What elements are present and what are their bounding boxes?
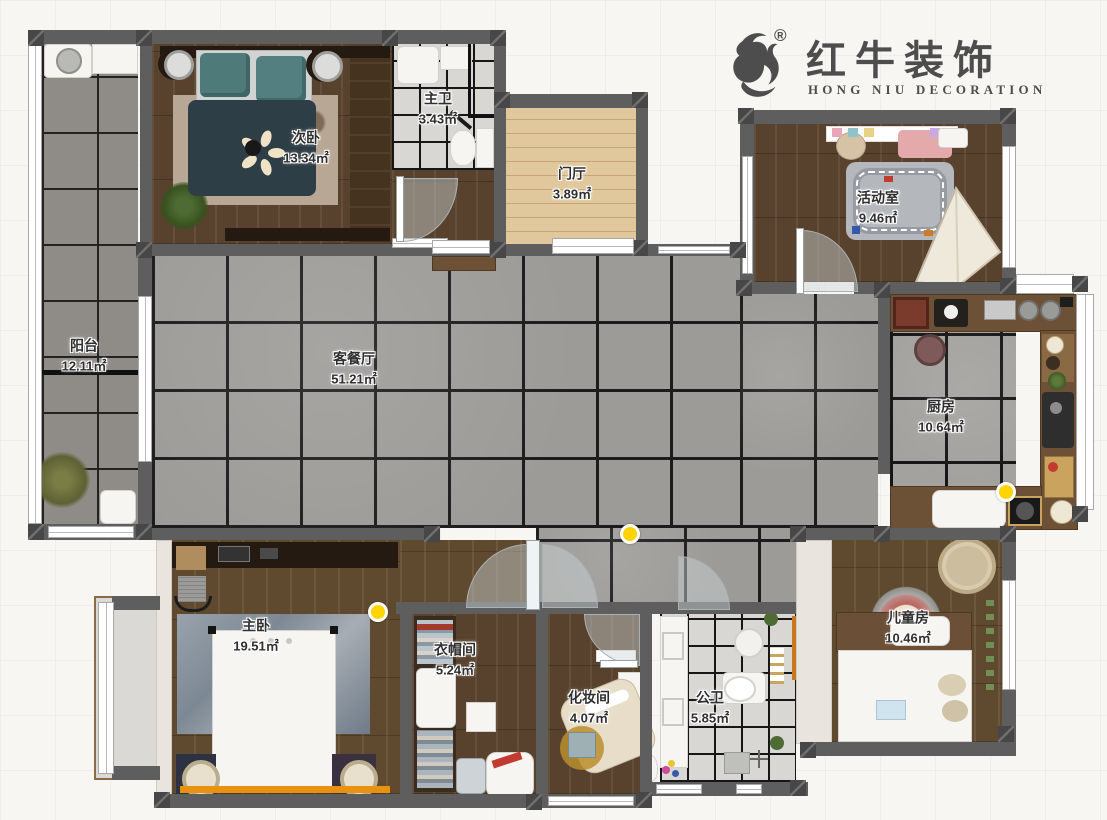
wall-closet-band	[796, 540, 832, 744]
wall-segment	[1002, 688, 1016, 756]
room-area: 12.11㎡	[62, 357, 107, 378]
wall-post	[1072, 276, 1088, 292]
flue-box	[893, 297, 929, 329]
plant-small	[764, 612, 778, 626]
window	[98, 602, 114, 774]
room-label-master-bedroom: 主卧19.51㎡	[233, 614, 279, 657]
wall-segment	[140, 30, 506, 44]
shoe-cabinet	[432, 256, 496, 271]
kids-blanket	[876, 700, 906, 720]
wok	[914, 334, 946, 366]
room-label-activity-room: 活动室9.46㎡	[857, 186, 899, 229]
room-area: 3.89㎡	[553, 185, 591, 206]
wall-post	[28, 524, 44, 540]
toy-dot	[662, 766, 670, 774]
hanging-clothes	[417, 730, 453, 788]
red-garment	[417, 624, 453, 630]
sink-basin	[662, 632, 684, 660]
desk-gadget	[260, 548, 278, 559]
wall-segment	[112, 596, 160, 610]
wall-post	[424, 526, 440, 542]
herb-plant	[1048, 372, 1066, 390]
room-label-kids-room: 儿童房10.46㎡	[885, 606, 931, 649]
wall-post	[136, 242, 152, 258]
wall-segment	[1002, 540, 1016, 580]
logo: ® 红牛装饰 HONG NIU DECORATION	[722, 20, 1052, 112]
light-marker	[620, 524, 640, 544]
wall-post	[136, 30, 152, 46]
toy	[832, 128, 842, 137]
wall-inner-face	[156, 540, 172, 796]
wall-post	[730, 242, 746, 258]
window-bay	[1076, 294, 1094, 510]
wall-segment	[878, 294, 890, 474]
room-name: 化妆间	[568, 689, 610, 705]
room-name: 衣帽间	[434, 641, 476, 657]
laundry-bag	[456, 758, 486, 794]
wall-segment	[640, 602, 652, 794]
toy-car	[884, 176, 893, 182]
room-name: 公卫	[696, 689, 724, 705]
window	[658, 246, 730, 254]
room-name: 主卫	[424, 90, 452, 106]
toilet-icon	[450, 130, 476, 166]
wall-post	[736, 280, 752, 296]
room-label-kitchen: 厨房10.64㎡	[918, 395, 964, 438]
room-label-entry-hall: 门厅3.89㎡	[553, 162, 591, 205]
lamp-icon	[312, 51, 343, 82]
toy-dot	[672, 770, 679, 777]
lamp-icon	[164, 50, 194, 80]
wall-post	[526, 794, 542, 810]
window	[736, 784, 762, 794]
shower-glass-partition	[468, 44, 471, 118]
sink-drain	[1050, 402, 1062, 414]
bed-button	[286, 638, 292, 644]
light-marker	[996, 482, 1016, 502]
bed-post	[208, 626, 216, 634]
window	[656, 784, 702, 794]
brand-subtitle: HONG NIU DECORATION	[808, 82, 1046, 98]
wall-post	[790, 780, 806, 796]
wall-segment	[536, 602, 548, 794]
room-name: 阳台	[70, 337, 98, 353]
floor-plan-page: { "logo": { "brand": "红牛装饰", "subtitle":…	[0, 0, 1107, 820]
window	[48, 526, 134, 538]
brand-name: 红牛装饰	[806, 28, 1002, 86]
bench-orange	[180, 786, 390, 793]
leaf-garland	[986, 594, 994, 690]
plant-small	[770, 736, 784, 750]
mop-sink	[100, 490, 136, 524]
window	[1002, 580, 1016, 690]
window	[548, 796, 634, 806]
cutting-board	[1044, 456, 1074, 498]
pot	[1040, 300, 1061, 321]
room-area: 13.34㎡	[283, 149, 329, 170]
room-label-balcony: 阳台12.11㎡	[62, 334, 107, 377]
wall-post	[490, 242, 506, 258]
tv-icon	[218, 546, 250, 562]
storage-box	[466, 702, 496, 732]
room-area: 5.85㎡	[691, 709, 729, 730]
wall-post	[494, 92, 510, 108]
room-area: 19.51㎡	[233, 637, 279, 658]
wall-segment	[740, 110, 1016, 124]
door-leaf	[600, 660, 638, 668]
room-name: 厨房	[927, 398, 955, 414]
room-name: 客餐厅	[333, 350, 375, 366]
room-label-public-bath: 公卫5.85㎡	[691, 686, 729, 729]
wall-post	[632, 240, 648, 256]
bath-cabinet	[476, 128, 494, 168]
window	[138, 296, 152, 462]
wall-segment	[494, 30, 506, 256]
wall-post	[490, 30, 506, 46]
pot	[1018, 300, 1039, 321]
floor-living-dining	[152, 256, 740, 528]
jute-rug	[938, 538, 996, 594]
room-area: 9.46㎡	[857, 209, 899, 230]
floor-drain	[724, 752, 750, 774]
wall-post	[28, 30, 44, 46]
wall-post	[1072, 506, 1088, 522]
door-leaf	[396, 176, 404, 242]
room-name: 儿童房	[887, 609, 929, 625]
room-label-master-bath: 主卫3.43㎡	[419, 87, 457, 130]
window	[1002, 146, 1016, 268]
tall-wardrobe	[350, 44, 390, 244]
wall-post	[636, 792, 652, 808]
wall-post	[382, 30, 398, 46]
toy-dot	[668, 760, 675, 767]
wall-segment	[140, 44, 152, 244]
bench-pillow	[938, 128, 968, 148]
room-area: 3.43㎡	[419, 110, 457, 131]
wall-post	[874, 282, 890, 298]
spice-jar	[1060, 297, 1073, 307]
door-frame-wood	[792, 616, 796, 680]
wall-segment	[636, 94, 648, 244]
room-name: 活动室	[857, 189, 899, 205]
room-name: 次卧	[292, 129, 320, 145]
wall-segment	[796, 528, 1016, 540]
room-area: 10.64㎡	[918, 418, 964, 439]
wall-post	[790, 526, 806, 542]
cushion	[942, 700, 968, 722]
wall-segment	[400, 610, 412, 794]
wall-post	[1000, 526, 1016, 542]
desk-drawers	[176, 546, 206, 570]
wall-segment	[806, 742, 1016, 756]
wall-segment	[140, 528, 432, 540]
balcony-plant	[34, 452, 90, 508]
bed-kids	[838, 650, 972, 742]
shower-tray	[397, 46, 439, 84]
wall-post	[136, 524, 152, 540]
wall-post	[800, 742, 816, 758]
room-label-second-bedroom: 次卧13.34㎡	[283, 126, 329, 169]
window	[1016, 274, 1074, 294]
room-area: 4.07㎡	[568, 709, 610, 730]
room-name: 门厅	[558, 165, 586, 181]
toy	[848, 128, 858, 137]
tomato	[1048, 462, 1058, 472]
door-leaf	[796, 228, 804, 294]
round-basin	[734, 628, 764, 658]
wall-post	[874, 526, 890, 542]
window-balcony	[28, 44, 42, 524]
room-label-cloakroom: 衣帽间5.24㎡	[434, 638, 476, 681]
room-label-living-dining: 客餐厅51.21㎡	[331, 347, 377, 390]
sink-basin	[662, 698, 684, 726]
room-area: 51.21㎡	[331, 370, 377, 391]
washer-drum-icon	[56, 48, 82, 74]
pass-window	[432, 240, 490, 254]
wall-post	[632, 92, 648, 108]
metal-tray	[984, 300, 1016, 320]
kitchen-sink	[1042, 392, 1074, 448]
pillow	[256, 56, 306, 102]
cushion	[938, 674, 966, 696]
burner-icon	[1016, 502, 1034, 520]
pillow	[200, 53, 250, 97]
dishwasher	[932, 490, 1006, 528]
bowl	[1046, 356, 1060, 370]
wall-post	[998, 726, 1014, 742]
room-area: 5.24㎡	[434, 661, 476, 682]
table-box	[568, 732, 596, 758]
floor-living-east	[740, 294, 878, 528]
room-label-makeup-room: 化妆间4.07㎡	[568, 686, 610, 729]
glass-door-leaf	[526, 540, 540, 610]
plate	[1046, 336, 1064, 354]
wall-post	[154, 792, 170, 808]
wall-segment	[1002, 124, 1016, 146]
wall-segment	[112, 766, 160, 780]
kettle	[944, 305, 958, 319]
wall-post	[1000, 278, 1016, 294]
shower-glass-partition	[468, 115, 494, 118]
wall-segment	[500, 94, 648, 108]
entry-threshold	[552, 238, 634, 254]
balcony-shelf	[92, 44, 138, 74]
wall-segment	[28, 30, 152, 44]
towel-ladder	[770, 648, 784, 684]
fruit-plate	[1050, 500, 1074, 524]
teepee-tent	[912, 186, 1004, 288]
bed-post	[330, 626, 338, 634]
toy	[864, 128, 874, 137]
registered-mark: ®	[774, 26, 787, 46]
shower-head-icon	[758, 750, 760, 768]
tv-console	[225, 228, 390, 241]
room-area: 10.46㎡	[885, 629, 931, 650]
room-name: 主卧	[242, 617, 270, 633]
wall-segment	[138, 462, 152, 528]
light-marker	[368, 602, 388, 622]
